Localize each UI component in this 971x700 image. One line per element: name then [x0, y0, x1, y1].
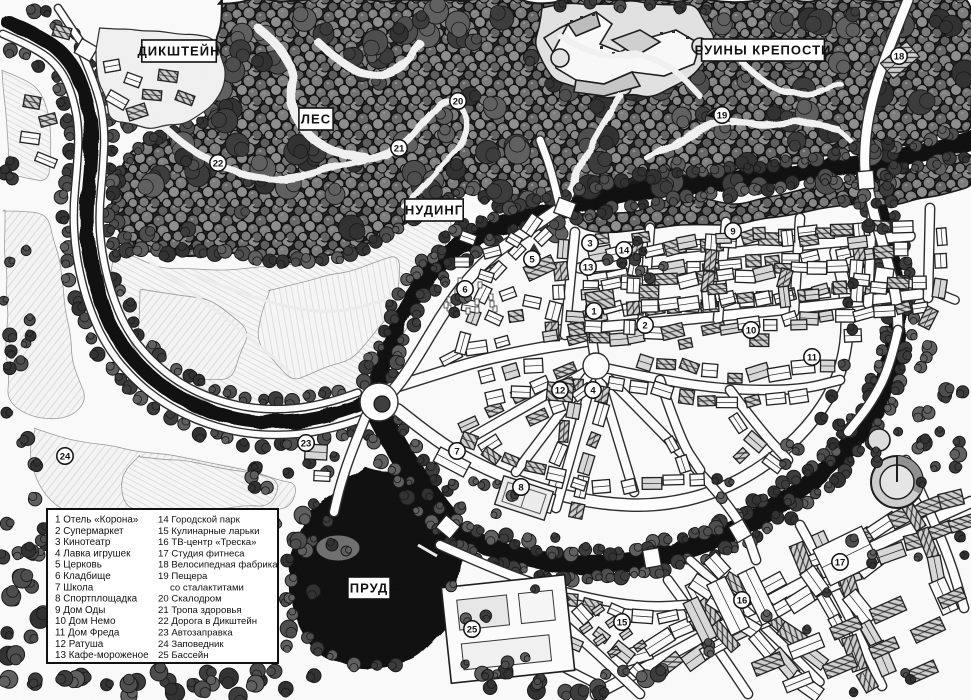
svg-text:22: 22: [213, 158, 224, 169]
svg-text:19 Пещера: 19 Пещера: [158, 571, 208, 582]
svg-text:8 Спортплощадка: 8 Спортплощадка: [55, 594, 138, 605]
svg-text:ДИКШТЕЙН: ДИКШТЕЙН: [138, 44, 221, 59]
svg-text:9 Дом Оды: 9 Дом Оды: [55, 605, 105, 616]
svg-text:21: 21: [394, 143, 405, 154]
svg-text:18: 18: [894, 51, 905, 62]
svg-text:11: 11: [807, 352, 818, 363]
svg-text:14 Городской парк: 14 Городской парк: [158, 515, 241, 526]
svg-text:НУДИНГ: НУДИНГ: [405, 203, 463, 218]
svg-text:15 Кулинарные ларьки: 15 Кулинарные ларьки: [158, 526, 259, 537]
svg-text:2: 2: [642, 320, 647, 331]
svg-text:3 Кинотеатр: 3 Кинотеатр: [55, 537, 111, 548]
svg-text:13 Кафе-мороженое: 13 Кафе-мороженое: [55, 650, 149, 661]
svg-text:5: 5: [529, 254, 535, 265]
svg-text:7: 7: [454, 446, 459, 457]
svg-text:25 Бассейн: 25 Бассейн: [158, 650, 209, 661]
svg-text:13: 13: [583, 262, 594, 273]
svg-text:12: 12: [555, 385, 566, 396]
svg-text:15: 15: [617, 617, 628, 628]
svg-text:14: 14: [619, 245, 630, 256]
svg-text:17: 17: [835, 557, 846, 568]
svg-text:16: 16: [737, 595, 748, 606]
svg-text:7 Школа: 7 Школа: [55, 582, 94, 593]
svg-text:19: 19: [717, 110, 728, 121]
svg-text:16 ТВ-центр «Треска»: 16 ТВ-центр «Треска»: [158, 537, 256, 548]
svg-text:4: 4: [590, 385, 596, 396]
svg-text:2 Супермаркет: 2 Супермаркет: [55, 526, 124, 537]
svg-text:1: 1: [591, 306, 597, 317]
svg-text:10: 10: [746, 325, 757, 336]
svg-text:17 Студия фитнеса: 17 Студия фитнеса: [158, 548, 245, 559]
svg-text:РУИНЫ КРЕПОСТИ: РУИНЫ КРЕПОСТИ: [695, 43, 832, 58]
svg-text:23 Автозаправка: 23 Автозаправка: [158, 628, 233, 639]
svg-text:24: 24: [60, 451, 71, 462]
svg-text:6 Кладбище: 6 Кладбище: [55, 571, 111, 582]
svg-text:22 Дорога в Дикштейн: 22 Дорога в Дикштейн: [158, 616, 257, 627]
svg-text:6: 6: [462, 284, 467, 295]
svg-text:9: 9: [730, 226, 735, 237]
svg-text:11 Дом Фреда: 11 Дом Фреда: [55, 628, 120, 639]
svg-text:8: 8: [518, 482, 523, 493]
svg-text:23: 23: [301, 438, 312, 449]
svg-text:1 Отель «Корона»: 1 Отель «Корона»: [55, 515, 139, 526]
svg-text:5 Церковь: 5 Церковь: [55, 560, 102, 571]
svg-text:3: 3: [587, 238, 592, 249]
svg-text:20 Скалодром: 20 Скалодром: [158, 594, 222, 605]
svg-text:24 Заповедник: 24 Заповедник: [158, 639, 224, 650]
svg-text:21 Тропа здоровья: 21 Тропа здоровья: [158, 605, 242, 616]
svg-text:12 Ратуша: 12 Ратуша: [55, 639, 104, 650]
svg-text:10 Дом Немо: 10 Дом Немо: [55, 616, 116, 627]
svg-text:ЛЕС: ЛЕС: [301, 112, 331, 127]
svg-text:со сталактитами: со сталактитами: [170, 582, 244, 593]
svg-text:ПРУД: ПРУД: [350, 581, 389, 596]
svg-text:25: 25: [467, 624, 478, 635]
svg-text:18 Велосипедная фабрика: 18 Велосипедная фабрика: [158, 560, 278, 571]
svg-text:20: 20: [453, 96, 464, 107]
svg-text:4 Лавка игрушек: 4 Лавка игрушек: [55, 548, 131, 559]
